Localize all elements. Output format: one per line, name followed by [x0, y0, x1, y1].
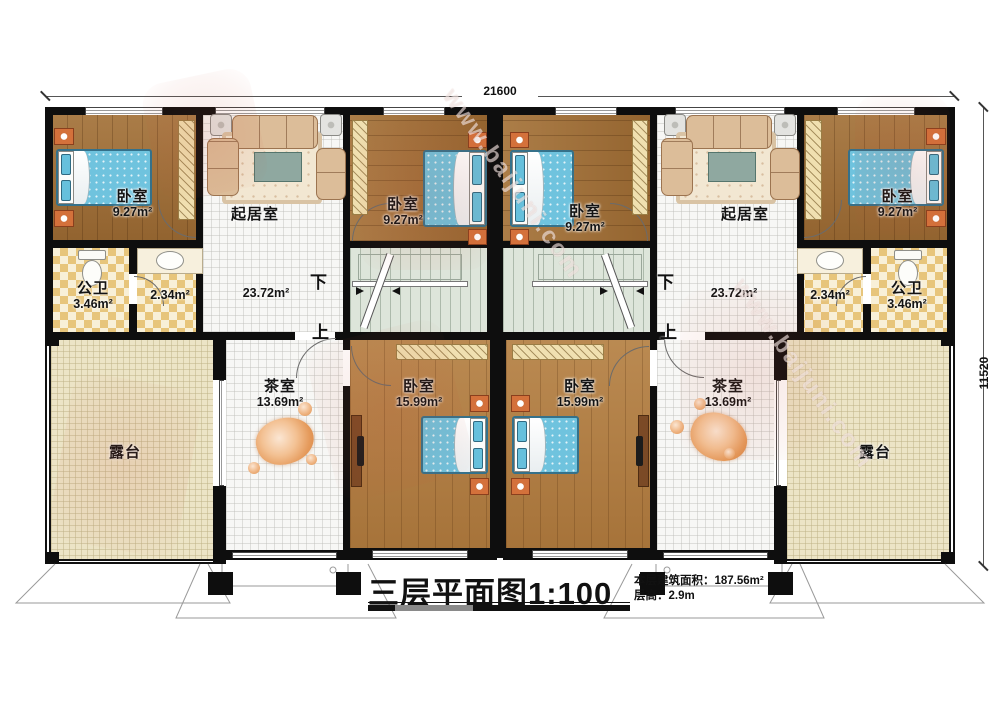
porch-column [768, 572, 793, 595]
window [372, 550, 468, 558]
wall [650, 386, 657, 558]
window [555, 107, 617, 115]
wall [941, 552, 955, 564]
floor-plan: 卧室 9.27m² 起居室 23.72m² 卧室 9.27m² 卧室 9.27m… [0, 0, 1000, 706]
height-note-value: 2.9m [669, 590, 695, 602]
room-label-living-r: 起居室 [695, 206, 795, 223]
area-note: 本层建筑面积：187.56m² [634, 574, 764, 589]
room-area-hall-l: 2.34m² [135, 288, 205, 302]
armchair [770, 148, 800, 200]
nightstand [510, 132, 529, 148]
wall [45, 107, 53, 340]
wall [774, 552, 787, 564]
glass-door [219, 380, 224, 486]
nightstand [510, 229, 529, 245]
nightstand [54, 210, 74, 227]
room-label-bedroom-br: 卧室 15.99m² [536, 378, 624, 410]
coffee-table [708, 152, 756, 182]
wardrobe [512, 344, 604, 360]
stair-rail [532, 281, 648, 287]
wall [45, 552, 59, 564]
toilet [894, 250, 922, 260]
room-area-living-l: 23.72m² [216, 286, 316, 300]
wall [490, 340, 506, 558]
wall [650, 115, 657, 332]
dimension-width: 21600 [462, 84, 538, 98]
stair-arrow [636, 287, 644, 295]
window [675, 107, 785, 115]
wall [213, 486, 226, 552]
room-label-bath-r: 公卫 3.46m² [867, 280, 947, 312]
pillow [517, 448, 527, 470]
room-label-living-l: 起居室 [205, 206, 305, 223]
parapet [785, 559, 955, 564]
porch-column [208, 572, 233, 595]
window [232, 552, 337, 558]
stair-down-label-right: 下 [657, 268, 674, 293]
height-note-label: 层高： [634, 590, 669, 602]
nightstand [511, 478, 530, 495]
bed-sheet-fold [74, 151, 90, 204]
stair-up-label-right: 上 [660, 318, 677, 343]
armchair [661, 138, 693, 196]
title-notes: 本层建筑面积：187.56m² 层高：2.9m [634, 574, 764, 604]
pillow [473, 448, 483, 470]
stair-down-label-left: 下 [310, 268, 327, 293]
pillow [61, 154, 71, 175]
wall [650, 340, 657, 350]
watermark-logo [855, 95, 950, 235]
bed-headboard [514, 418, 530, 472]
stair-up-label-left: 上 [312, 318, 329, 343]
wall [774, 486, 787, 552]
nightstand [54, 128, 74, 145]
end-table [320, 114, 342, 136]
toilet [78, 250, 106, 260]
wall [213, 552, 226, 564]
window [663, 552, 768, 558]
wall [213, 332, 226, 380]
sofa [686, 115, 772, 149]
tea-stone [248, 462, 260, 474]
dimension-line-right [983, 107, 984, 566]
armchair [316, 148, 346, 200]
stair-arrow [392, 287, 400, 295]
bed-sheet-fold [530, 418, 546, 472]
parapet [45, 340, 51, 564]
dimension-height: 11520 [977, 342, 991, 404]
wall [45, 332, 295, 340]
stair-arrow [600, 287, 608, 295]
wardrobe [805, 120, 822, 220]
pillow [517, 421, 527, 443]
height-note: 层高：2.9m [634, 589, 764, 604]
porch-column [336, 572, 361, 595]
pillow [473, 421, 483, 443]
stair-arrow [356, 287, 364, 295]
sink [156, 251, 184, 270]
wall [52, 240, 203, 248]
nightstand [470, 478, 489, 495]
tv [636, 436, 643, 466]
parapet [45, 559, 215, 564]
wall [343, 115, 350, 332]
pillow [61, 180, 71, 201]
tea-stone [306, 454, 317, 465]
wall [941, 332, 955, 346]
room-label-bedroom-tl: 卧室 9.27m² [90, 188, 175, 220]
area-note-label: 本层建筑面积： [634, 575, 715, 587]
window [532, 550, 628, 558]
sink [816, 251, 844, 270]
end-table [774, 114, 796, 136]
bed-headboard [58, 151, 74, 204]
wall [129, 248, 137, 274]
title-underline-bar-gray [395, 605, 473, 611]
room-label-bath-l: 公卫 3.46m² [53, 280, 133, 312]
wall [45, 332, 59, 346]
stair-rail [352, 281, 468, 287]
title-underline [368, 602, 630, 603]
area-note-value: 187.56m² [715, 575, 764, 587]
bed [512, 416, 579, 474]
parapet [949, 340, 955, 564]
wall [797, 240, 947, 248]
nightstand [511, 395, 530, 412]
bed-headboard [470, 418, 486, 472]
watermark-logo [139, 65, 272, 205]
nightstand [470, 395, 489, 412]
window [383, 107, 445, 115]
wall [863, 248, 871, 274]
wardrobe [632, 120, 648, 215]
